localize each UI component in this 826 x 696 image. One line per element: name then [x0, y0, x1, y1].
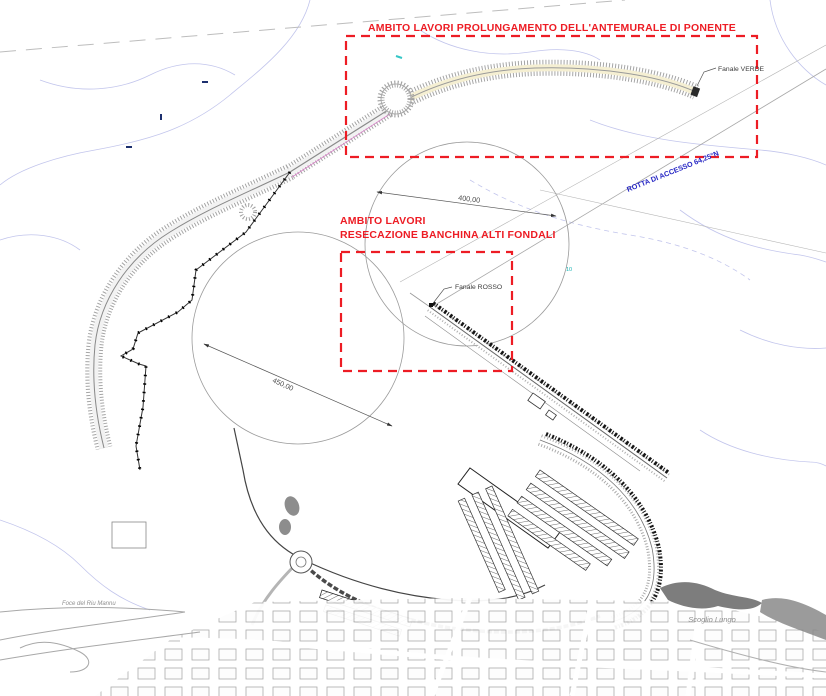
scoglio-lungo-label: Scoglio Lungo	[688, 615, 736, 624]
contour-line	[40, 64, 235, 89]
quay-structure-2	[546, 410, 557, 420]
quay-structure	[528, 393, 545, 409]
teal-tick	[396, 56, 402, 58]
basin-circle-400m	[365, 142, 569, 346]
roundabout	[290, 551, 312, 573]
contour-line	[770, 0, 826, 85]
west-breakwater-hatch	[94, 172, 290, 448]
parking-lot	[112, 522, 146, 548]
alti-fondali-quay	[410, 293, 669, 478]
depth-label: 10	[566, 267, 572, 273]
port-plan-drawing: 400,00 450,00	[0, 0, 826, 696]
west-breakwater	[94, 110, 390, 448]
vegetation-blob-2	[279, 519, 291, 535]
work-area-2-label-line2: RESECAZIONE BANCHINA ALTI FONDALI	[340, 229, 556, 241]
river-bank	[0, 612, 185, 640]
vegetation-blob	[282, 494, 302, 518]
contour-line	[420, 30, 600, 60]
contour-line	[0, 235, 80, 250]
basin-circle-450m	[192, 232, 404, 444]
contour-line	[0, 0, 310, 185]
small-spur	[241, 205, 255, 219]
red-light-label: Fanale ROSSO	[455, 284, 502, 291]
west-breakwater-centerline	[94, 172, 290, 448]
bearing-line	[540, 190, 826, 253]
access-route-label: ROTTA DI ACCESSO 64,25°N	[625, 149, 720, 194]
quay-extension-line	[410, 293, 430, 307]
river-mouth-label: Foce del Riu Mannu	[62, 601, 116, 607]
contour-line	[0, 520, 150, 610]
breakwater-diagonal-line	[290, 110, 388, 172]
green-light-label: Fanale VERDE	[718, 66, 765, 73]
breakwater-magenta-line	[292, 114, 390, 177]
work-area-2-label-line1: AMBITO LAVORI	[340, 215, 426, 227]
quay-edge	[430, 307, 667, 478]
river-loop	[20, 642, 89, 672]
town-blocks-area	[95, 598, 826, 696]
dimension-label-400: 400,00	[458, 193, 481, 205]
red-light-head	[429, 303, 433, 307]
port-plan-screenshot: 400,00 450,00	[0, 0, 826, 696]
west-breakwater-core	[94, 172, 290, 448]
green-light-leader	[697, 68, 716, 86]
dimension-line-450	[204, 344, 392, 426]
work-area-1-label: AMBITO LAVORI PROLUNGAMENTO DELL'ANTEMUR…	[368, 22, 736, 34]
contour-line	[740, 330, 826, 348]
contour-line	[700, 430, 826, 466]
extension-cream-band	[388, 68, 696, 110]
shore-line	[0, 608, 185, 613]
